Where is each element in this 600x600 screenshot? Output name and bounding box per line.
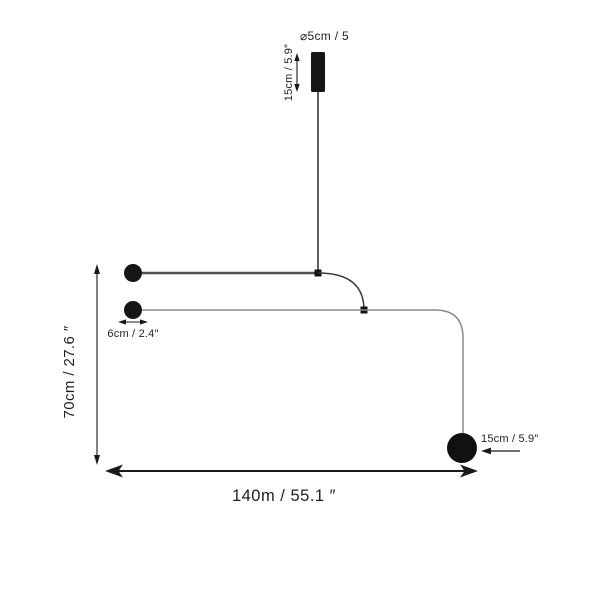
lamp-fixture	[124, 52, 477, 463]
dim-overall-width: 140m / 55.1 ″	[105, 465, 478, 506]
arrow-left-icon	[481, 448, 491, 455]
lower-arm	[142, 310, 463, 433]
arrow-up-icon	[294, 53, 299, 61]
sphere-shade	[447, 433, 477, 463]
dim-arm-offset: 6cm / 2.4″	[107, 319, 158, 340]
overall-height-label: 70cm / 27.6 ″	[61, 325, 78, 418]
dim-canopy-height: 15cm / 5.9″	[283, 44, 300, 101]
arrow-down-icon	[94, 455, 100, 465]
lower-arm-endcap	[124, 301, 142, 319]
canopy-height-label: 15cm / 5.9″	[283, 44, 295, 101]
canopy-diameter-label: ⌀5cm / 5	[300, 29, 349, 43]
arrow-right-icon	[140, 319, 148, 324]
overall-width-label: 140m / 55.1 ″	[232, 487, 336, 505]
dim-overall-height: 70cm / 27.6 ″	[61, 264, 100, 465]
arrow-up-icon	[94, 264, 100, 274]
ceiling-canopy	[311, 52, 325, 92]
arrow-down-icon	[294, 84, 299, 92]
dim-sphere-diameter: 15cm / 5.9″	[481, 433, 538, 454]
arm-connector-curve	[318, 273, 364, 310]
arrow-left-icon	[118, 319, 126, 324]
diagram-canvas: 15cm / 5.9″ ⌀5cm / 5 70cm / 27.6 ″ 6cm /…	[0, 0, 600, 600]
sphere-diameter-label: 15cm / 5.9″	[481, 433, 538, 445]
upper-arm-endcap	[124, 264, 142, 282]
arm-offset-label: 6cm / 2.4″	[107, 328, 158, 340]
lamp-dimension-diagram: 15cm / 5.9″ ⌀5cm / 5 70cm / 27.6 ″ 6cm /…	[0, 0, 600, 600]
